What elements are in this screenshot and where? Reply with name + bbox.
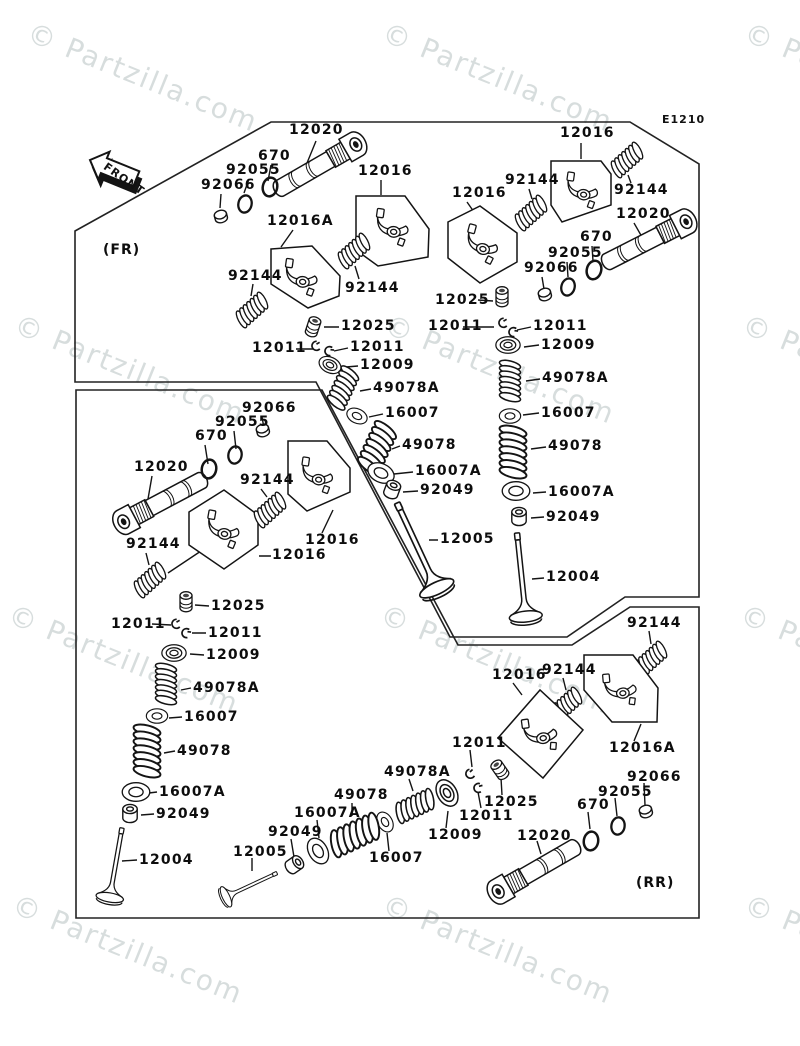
part-label-92144: 92144 [126, 537, 181, 551]
part-label-92144: 92144 [505, 173, 560, 187]
part-label-49078A: 49078A [542, 371, 609, 385]
valve-12005 [380, 495, 457, 605]
keeper-12011 [474, 783, 483, 793]
part-label-92144: 92144 [627, 616, 682, 630]
retainer-12009 [496, 337, 520, 354]
oring-670 [585, 259, 604, 281]
part-label-92055: 92055 [215, 415, 270, 429]
part-label-49078: 49078 [177, 744, 232, 758]
part-label-49078A: 49078A [384, 765, 451, 779]
spring-92144 [606, 140, 648, 181]
part-label-12025: 12025 [484, 795, 539, 809]
part-label-12016: 12016 [272, 548, 327, 562]
diagram-svg: FRONT [0, 0, 800, 1046]
retainer-12009 [432, 776, 463, 810]
oring-92055 [559, 277, 576, 297]
part-label-12011: 12011 [350, 340, 405, 354]
seat-16007 [499, 409, 520, 423]
part-label-16007A: 16007A [548, 485, 615, 499]
part-label-12016: 12016 [492, 668, 547, 682]
valve-12005 [216, 863, 282, 909]
retainer-12009 [162, 645, 186, 662]
part-label-92049: 92049 [156, 807, 211, 821]
part-label-12009: 12009 [206, 648, 261, 662]
part-label-12005: 12005 [233, 845, 288, 859]
part-label-12020: 12020 [616, 207, 671, 221]
part-label-92049: 92049 [420, 483, 475, 497]
keeper-12011 [498, 318, 508, 328]
spring-92144 [129, 560, 171, 601]
valve-12004 [95, 826, 136, 907]
retainer-12025 [180, 592, 192, 612]
part-label-92144: 92144 [228, 269, 283, 283]
keeper-12011 [171, 619, 181, 629]
part-label-49078: 49078 [334, 788, 389, 802]
oring-670 [583, 831, 600, 852]
part-label-12020: 12020 [517, 829, 572, 843]
seat-16007A [502, 482, 530, 501]
part-label-92066: 92066 [201, 178, 256, 192]
part-label-12004: 12004 [546, 570, 601, 584]
part-label-16007A: 16007A [415, 464, 482, 478]
oring-92055 [237, 194, 254, 214]
part-label-12011: 12011 [459, 809, 514, 823]
part-label-16007A: 16007A [294, 806, 361, 820]
part-label-49078: 49078 [402, 438, 457, 452]
retainer-12025 [304, 315, 322, 338]
keeper-12011 [508, 326, 519, 338]
part-label-12011: 12011 [428, 319, 483, 333]
part-label-92055: 92055 [598, 785, 653, 799]
spring-92144 [510, 193, 552, 234]
spring-49078A [499, 359, 522, 404]
part-label-92144: 92144 [614, 183, 669, 197]
part-label-12016: 12016 [560, 126, 615, 140]
front-arrow: FRONT [82, 146, 154, 203]
part-label-16007: 16007 [385, 406, 440, 420]
part-label-670: 670 [577, 798, 610, 812]
oring-92055 [610, 817, 626, 836]
lifter-92049 [123, 804, 137, 822]
part-label-12009: 12009 [541, 338, 596, 352]
part-label-12009: 12009 [360, 358, 415, 372]
part-label-49078A: 49078A [373, 381, 440, 395]
part-label-16007: 16007 [541, 406, 596, 420]
part-label-12011: 12011 [452, 736, 507, 750]
cap-92066 [213, 209, 228, 224]
part-label-92049: 92049 [268, 825, 323, 839]
keeper-12011 [464, 768, 475, 780]
part-label-12004: 12004 [139, 853, 194, 867]
retainer-12025 [496, 287, 508, 307]
part-label-12016: 12016 [305, 533, 360, 547]
rr-label: (RR) [636, 876, 674, 890]
part-label-12025: 12025 [211, 599, 266, 613]
part-label-12005: 12005 [440, 532, 495, 546]
part-label-12011: 12011 [111, 617, 166, 631]
seat-16007 [344, 405, 369, 427]
part-label-12011: 12011 [252, 341, 307, 355]
seat-16007 [146, 709, 167, 723]
cap-92066 [537, 287, 552, 302]
lifter-92049 [512, 507, 526, 525]
part-label-16007: 16007 [369, 851, 424, 865]
part-label-670: 670 [195, 429, 228, 443]
part-label-12020: 12020 [134, 460, 189, 474]
part-label-12016: 12016 [452, 186, 507, 200]
part-label-12016A: 12016A [609, 741, 676, 755]
oring-670 [261, 176, 279, 197]
part-label-49078A: 49078A [193, 681, 260, 695]
part-label-12025: 12025 [341, 319, 396, 333]
part-label-49078: 49078 [548, 439, 603, 453]
oring-670 [200, 458, 217, 479]
keeper-12011 [181, 627, 192, 639]
part-label-92055: 92055 [548, 246, 603, 260]
keeper-12011 [311, 341, 321, 351]
spring-92144 [231, 290, 273, 331]
spring-49078 [132, 722, 161, 779]
part-label-16007: 16007 [184, 710, 239, 724]
part-label-12016: 12016 [358, 164, 413, 178]
spring-49078A [155, 662, 178, 707]
part-label-92144: 92144 [240, 473, 295, 487]
rocker-shaft-12020 [268, 128, 371, 202]
part-label-12011: 12011 [208, 626, 263, 640]
part-label-670: 670 [258, 149, 291, 163]
diagram-code: E1210 [662, 114, 705, 125]
part-label-16007A: 16007A [159, 785, 226, 799]
part-label-12011: 12011 [533, 319, 588, 333]
part-label-12009: 12009 [428, 828, 483, 842]
part-label-92066: 92066 [242, 401, 297, 415]
rocker-shaft-12020 [483, 833, 586, 907]
part-label-12016A: 12016A [267, 214, 334, 228]
part-label-12025: 12025 [435, 293, 490, 307]
part-label-670: 670 [580, 230, 613, 244]
part-label-92066: 92066 [627, 770, 682, 784]
keeper-12011 [324, 345, 335, 357]
cap-92066 [638, 804, 653, 819]
part-label-12020: 12020 [289, 123, 344, 137]
fr-label: (FR) [103, 243, 140, 257]
retainer-12025 [489, 758, 510, 781]
part-label-92144: 92144 [345, 281, 400, 295]
parts-diagram-page: © Partzilla.com© Partzilla.com© Partzill… [0, 0, 800, 1046]
part-label-92049: 92049 [546, 510, 601, 524]
spring-49078A [390, 786, 440, 826]
seat-16007A [122, 783, 150, 802]
oring-92055 [227, 445, 243, 464]
part-label-92144: 92144 [542, 663, 597, 677]
spring-49078 [498, 423, 527, 480]
part-label-92055: 92055 [226, 163, 281, 177]
part-label-92066: 92066 [524, 261, 579, 275]
